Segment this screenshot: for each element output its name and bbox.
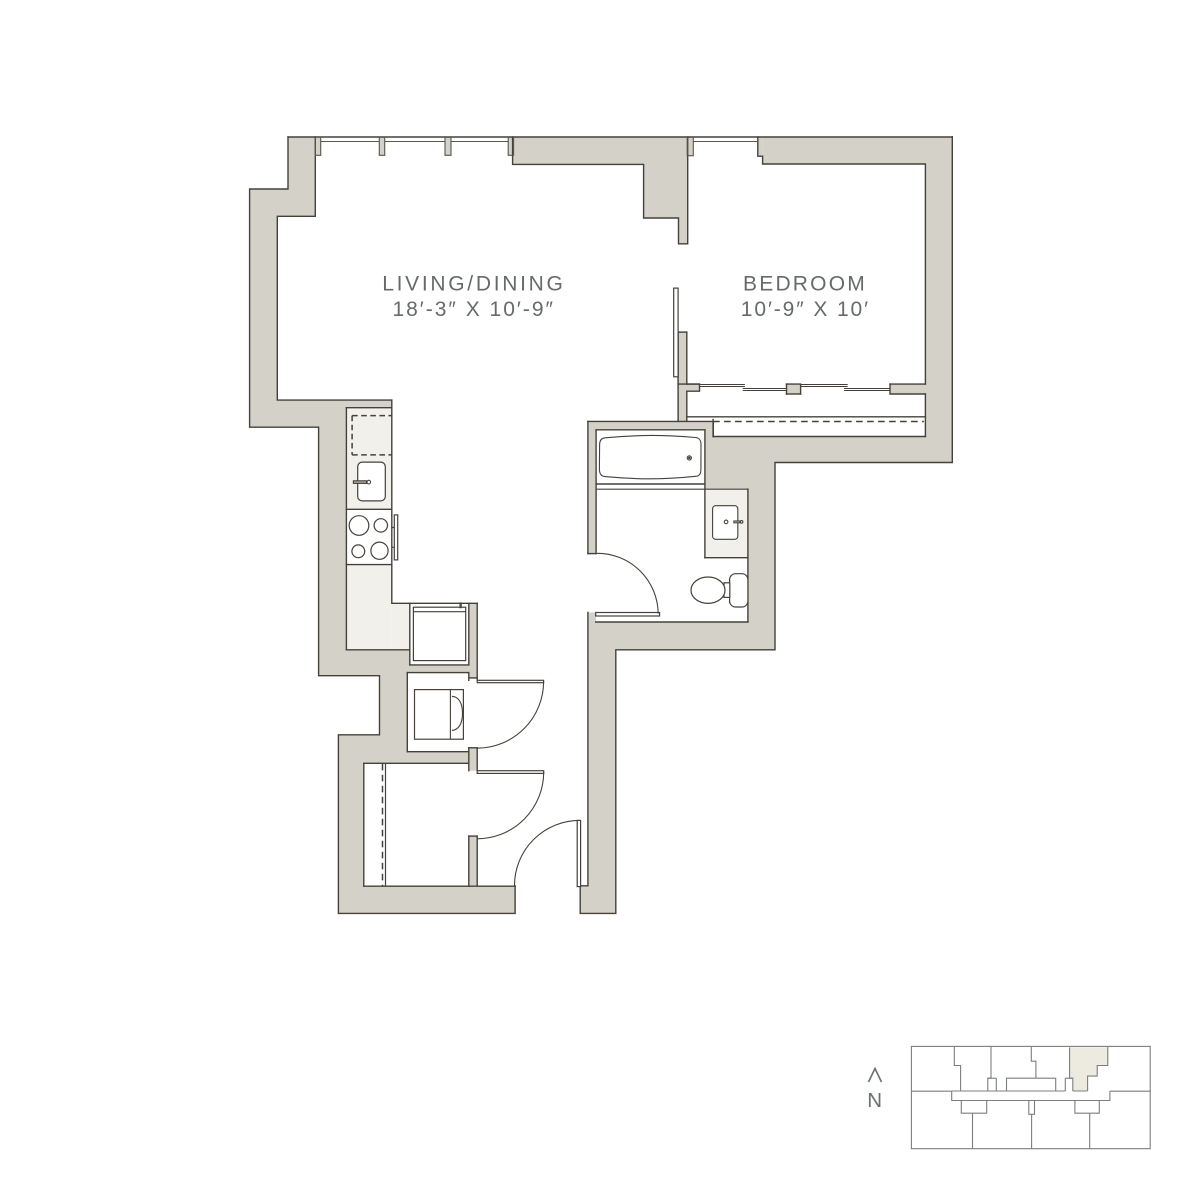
svg-text:10′-9″ X 10′: 10′-9″ X 10′ bbox=[741, 298, 870, 321]
svg-text:18′-3″ X 10′-9″: 18′-3″ X 10′-9″ bbox=[392, 298, 554, 321]
svg-text:N: N bbox=[867, 1089, 882, 1112]
svg-text:LIVING/DINING: LIVING/DINING bbox=[382, 273, 565, 296]
svg-text:BEDROOM: BEDROOM bbox=[743, 273, 867, 296]
